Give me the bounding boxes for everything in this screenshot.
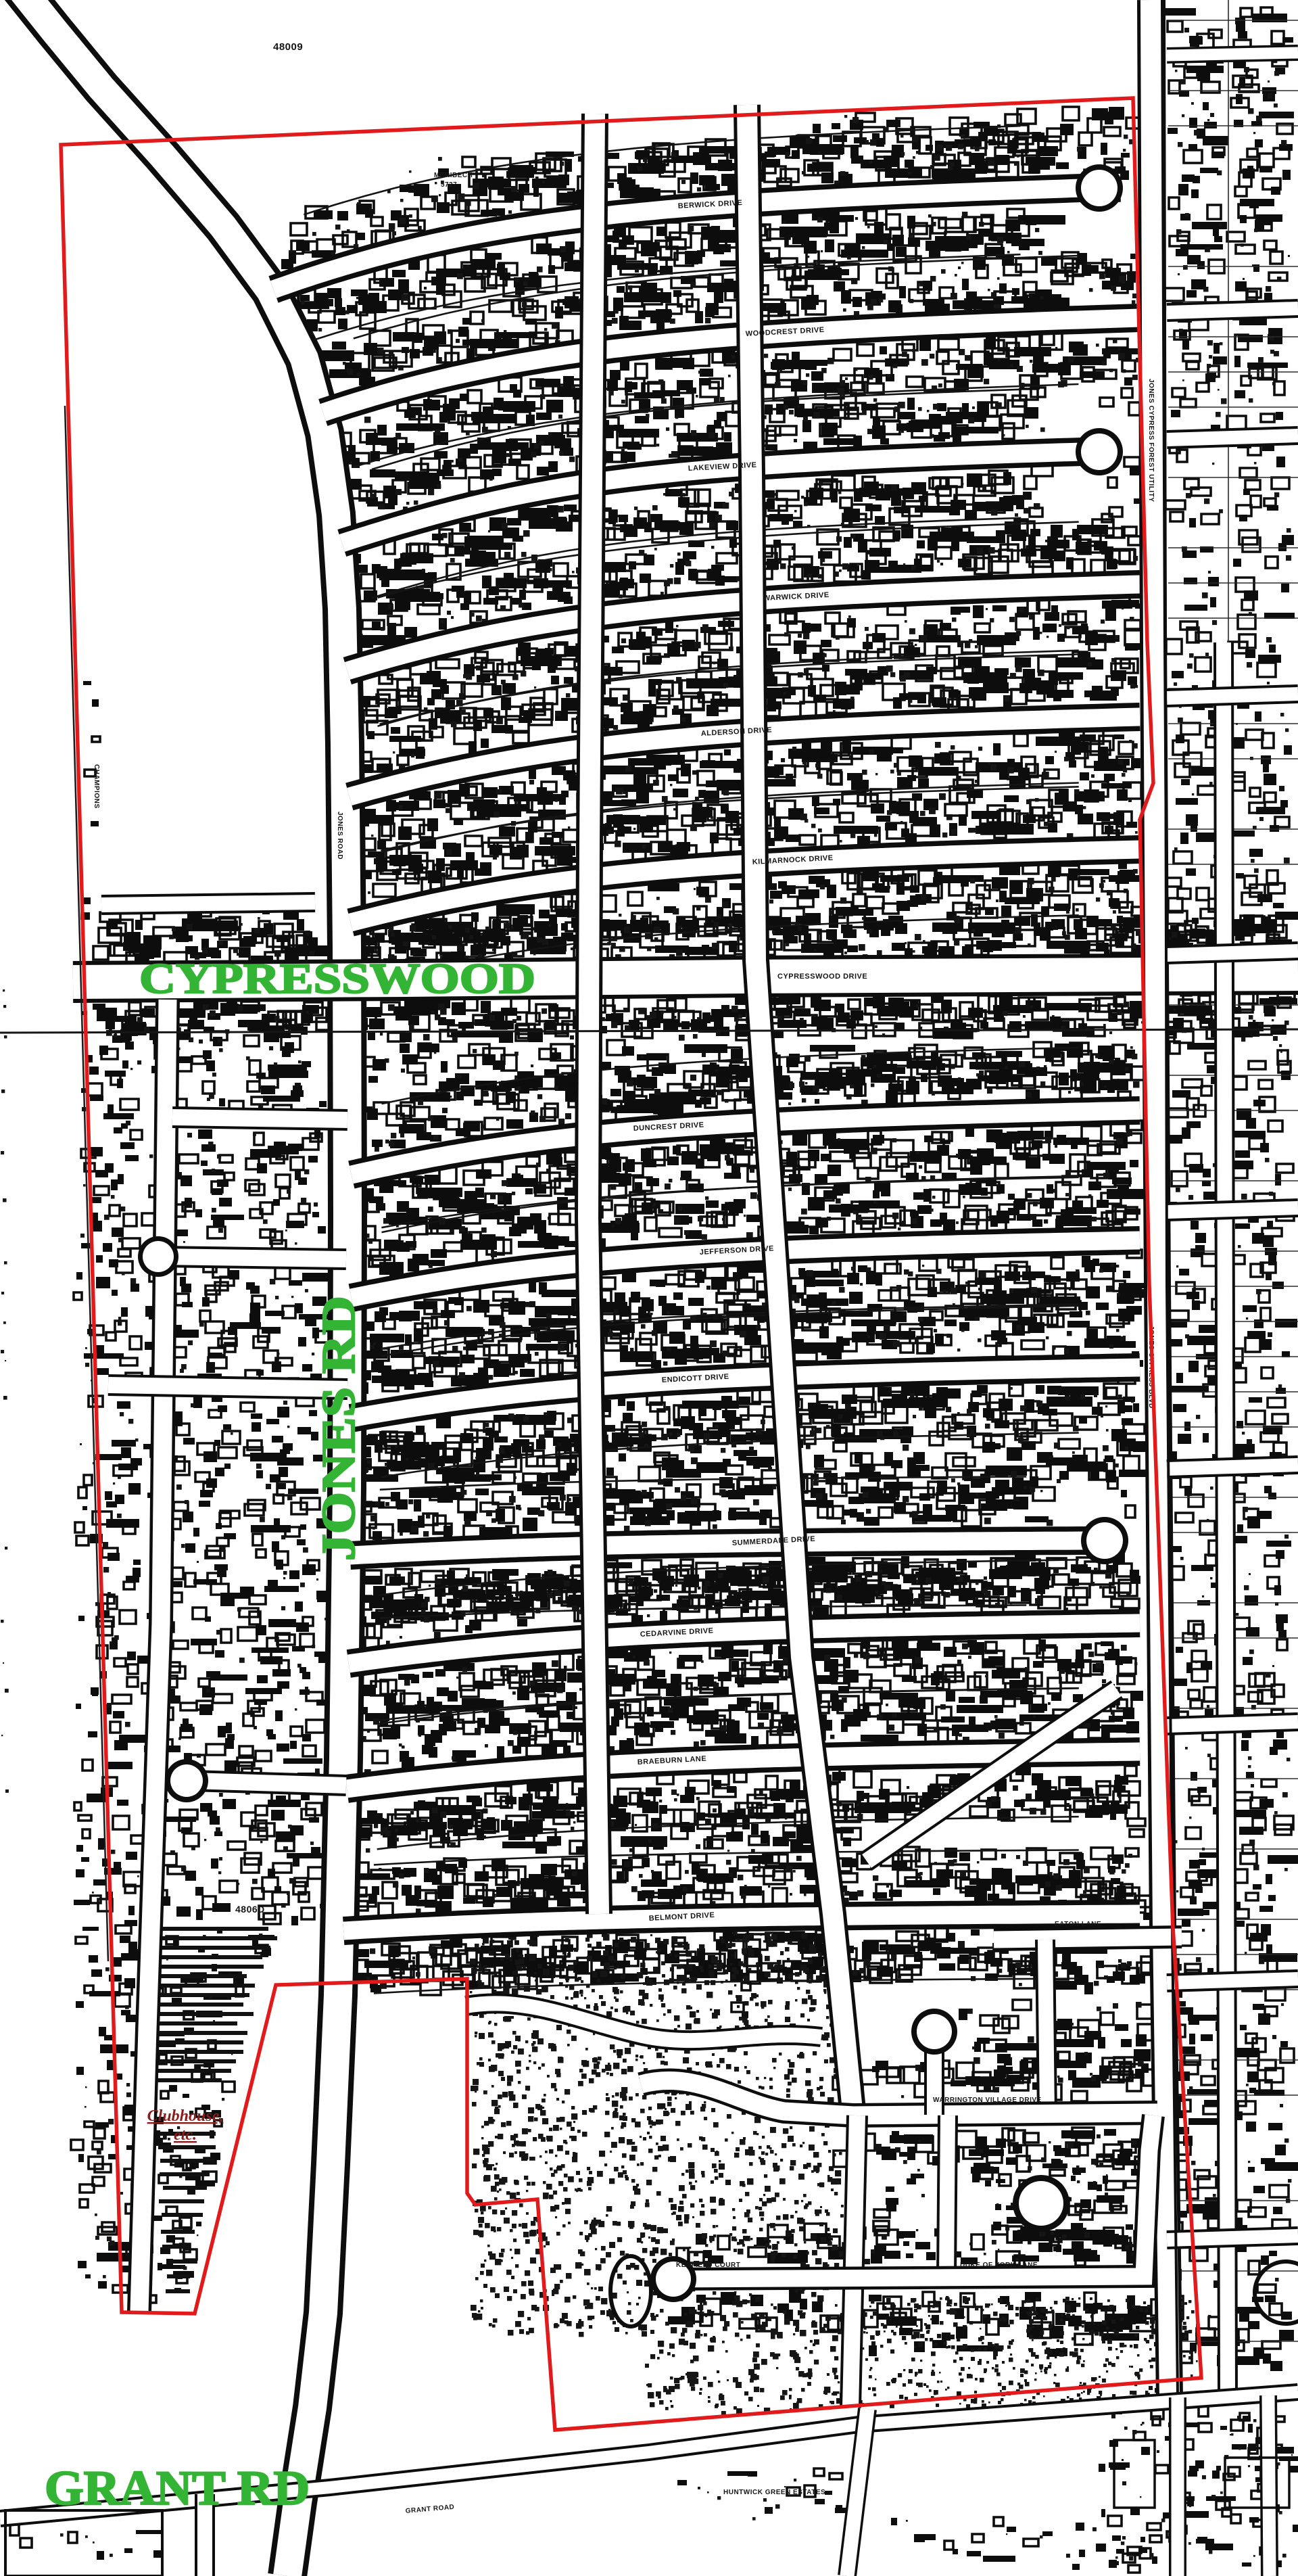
svg-text:Clubhouse,: Clubhouse,	[147, 2107, 224, 2125]
svg-text:JONES CYPRESS FOREST UTILITY: JONES CYPRESS FOREST UTILITY	[1147, 379, 1155, 502]
svg-text:JONES ROAD: JONES ROAD	[336, 812, 343, 860]
svg-text:WARRINGTON VILLAGE DRIVE: WARRINGTON VILLAGE DRIVE	[933, 2097, 1042, 2104]
svg-text:HUNTWICK GREEN ESTATES: HUNTWICK GREEN ESTATES	[723, 2489, 825, 2496]
svg-text:48009: 48009	[273, 41, 303, 53]
svg-text:4806D: 4806D	[235, 1904, 265, 1915]
svg-text:CYPRESSWOOD DRIVE: CYPRESSWOOD DRIVE	[777, 973, 867, 981]
svg-text:CYPRESSWOOD: CYPRESSWOOD	[139, 955, 535, 1002]
svg-text:etc.: etc.	[174, 2126, 197, 2144]
svg-text:KENFIELD COURT: KENFIELD COURT	[676, 2262, 740, 2269]
svg-text:DUKE OF YORK LANE: DUKE OF YORK LANE	[960, 2262, 1038, 2269]
svg-text:MERIBECH: MERIBECH	[434, 172, 473, 179]
svg-text:5727: 5727	[441, 181, 457, 189]
svg-text:JONES RD: JONES RD	[313, 1296, 365, 1561]
svg-text:GRANT RD: GRANT RD	[45, 2461, 310, 2515]
svg-text:CHAMPIONS: CHAMPIONS	[93, 764, 100, 809]
svg-text:EATON LANE: EATON LANE	[1055, 1921, 1101, 1928]
